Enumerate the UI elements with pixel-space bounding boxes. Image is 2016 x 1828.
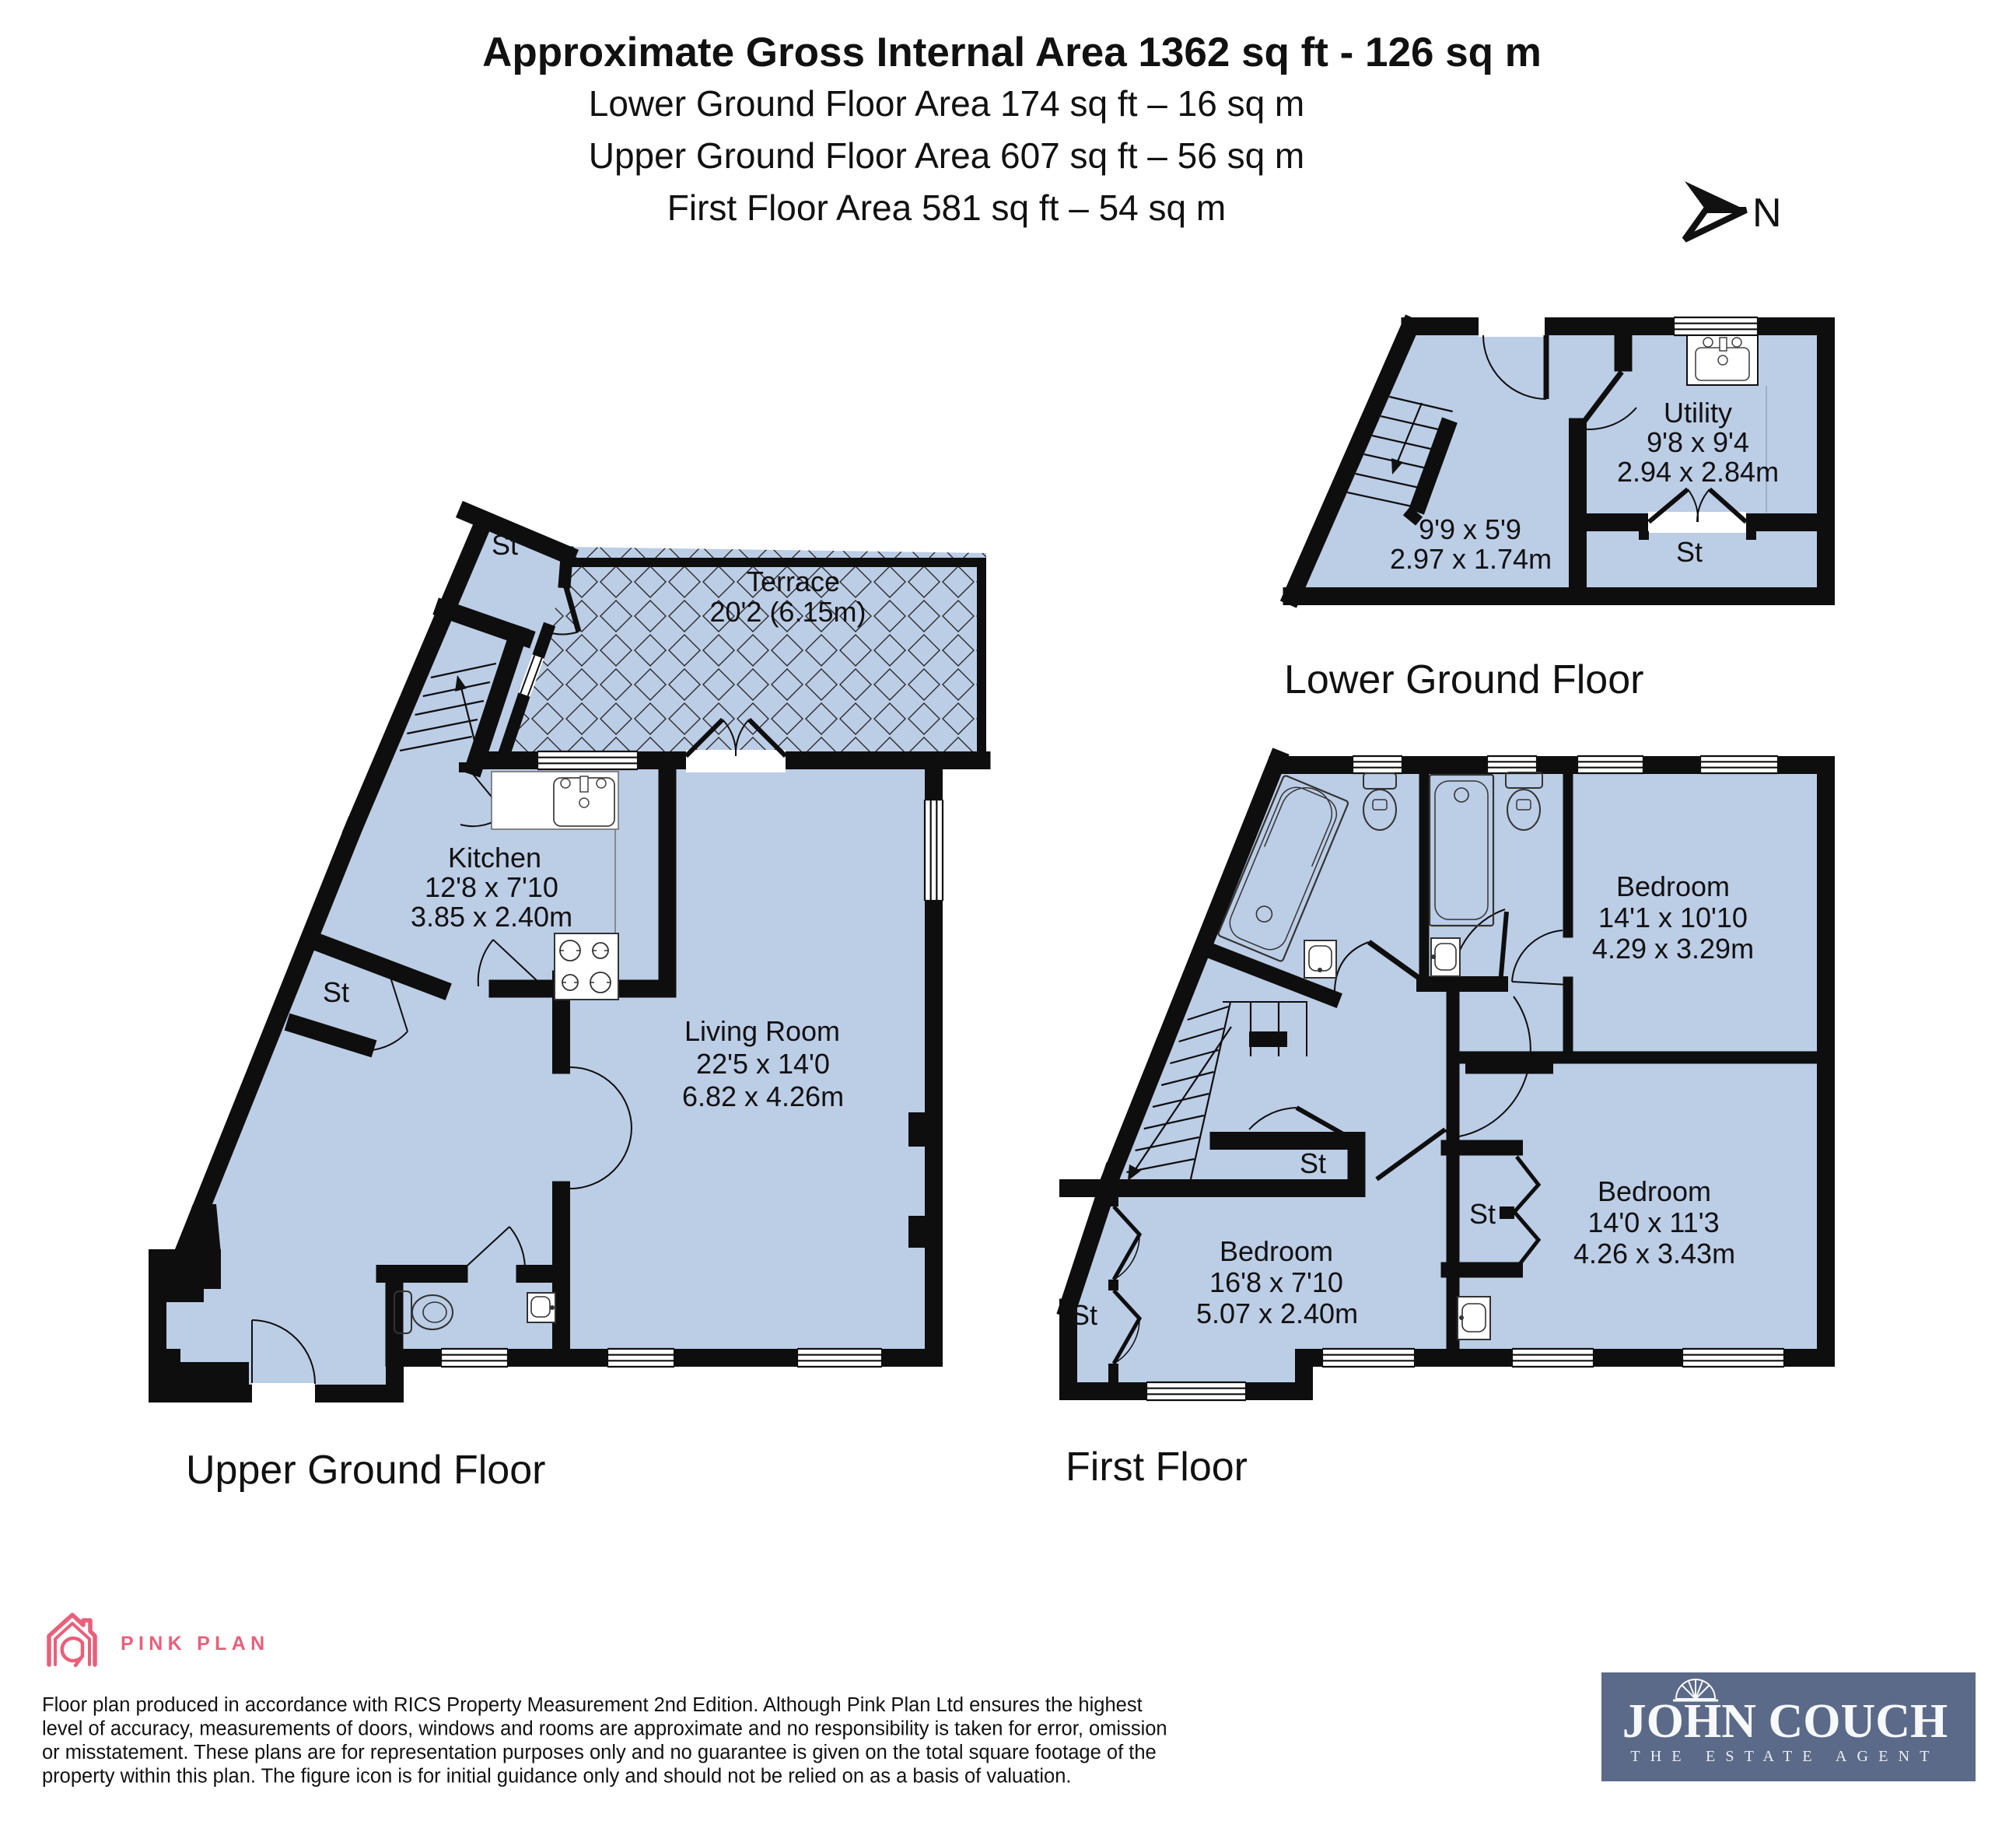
- svg-text:St: St: [1300, 1147, 1326, 1179]
- svg-text:Utility: Utility: [1664, 397, 1732, 429]
- svg-text:4.29 x 3.29m: 4.29 x 3.29m: [1592, 933, 1754, 965]
- svg-text:2.94 x 2.84m: 2.94 x 2.84m: [1617, 456, 1779, 488]
- svg-text:Lower Ground Floor: Lower Ground Floor: [1284, 657, 1643, 702]
- svg-text:Floor plan produced in accorda: Floor plan produced in accordance with R…: [42, 1694, 1143, 1716]
- svg-text:5.07 x 2.40m: 5.07 x 2.40m: [1196, 1297, 1358, 1329]
- svg-text:THE ESTATE AGENT: THE ESTATE AGENT: [1630, 1748, 1939, 1765]
- svg-text:Upper Ground Floor Area 607 sq: Upper Ground Floor Area 607 sq ft – 56 s…: [589, 135, 1305, 176]
- svg-text:12'8 x 7'10: 12'8 x 7'10: [425, 871, 558, 903]
- svg-text:or misstatement. These plans a: or misstatement. These plans are for rep…: [42, 1742, 1157, 1763]
- svg-text:St: St: [1469, 1198, 1496, 1230]
- svg-text:Bedroom: Bedroom: [1220, 1235, 1333, 1267]
- svg-text:3.85 x 2.40m: 3.85 x 2.40m: [411, 901, 572, 933]
- svg-text:level of accuracy, measurement: level of accuracy, measurements of doors…: [42, 1718, 1167, 1740]
- svg-text:2.97 x 1.74m: 2.97 x 1.74m: [1390, 543, 1552, 575]
- svg-text:PINK PLAN: PINK PLAN: [121, 1633, 269, 1655]
- svg-text:Living Room: Living Room: [684, 1015, 840, 1047]
- svg-text:Bedroom: Bedroom: [1616, 870, 1730, 902]
- svg-text:4.26 x 3.43m: 4.26 x 3.43m: [1573, 1238, 1735, 1269]
- svg-text:N: N: [1752, 191, 1782, 236]
- svg-text:Approximate Gross Internal Are: Approximate Gross Internal Area 1362 sq …: [482, 30, 1542, 75]
- svg-text:14'0 x 11'3: 14'0 x 11'3: [1587, 1206, 1719, 1238]
- svg-text:16'8 x 7'10: 16'8 x 7'10: [1209, 1266, 1343, 1298]
- svg-text:6.82 x 4.26m: 6.82 x 4.26m: [682, 1080, 844, 1112]
- svg-text:First Floor: First Floor: [1066, 1445, 1248, 1490]
- svg-text:Terrace: Terrace: [747, 566, 840, 597]
- svg-text:Kitchen: Kitchen: [448, 842, 541, 874]
- svg-text:Upper Ground Floor: Upper Ground Floor: [186, 1448, 545, 1493]
- svg-text:20'2 (6.15m): 20'2 (6.15m): [710, 596, 866, 628]
- svg-text:JOHN COUCH: JOHN COUCH: [1622, 1695, 1948, 1748]
- svg-text:14'1 x 10'10: 14'1 x 10'10: [1598, 902, 1748, 933]
- svg-text:Bedroom: Bedroom: [1598, 1175, 1711, 1207]
- svg-text:9'8 x 9'4: 9'8 x 9'4: [1647, 426, 1749, 458]
- svg-text:St: St: [1676, 536, 1703, 568]
- svg-text:Lower Ground Floor Area 174 sq: Lower Ground Floor Area 174 sq ft – 16 s…: [589, 83, 1305, 124]
- svg-text:First Floor Area 581 sq ft – 5: First Floor Area 581 sq ft – 54 sq m: [667, 187, 1226, 228]
- svg-text:St: St: [492, 529, 518, 561]
- svg-text:St: St: [323, 976, 349, 1008]
- svg-text:St: St: [1071, 1299, 1097, 1331]
- svg-text:9'9 x 5'9: 9'9 x 5'9: [1419, 513, 1521, 545]
- svg-text:22'5 x 14'0: 22'5 x 14'0: [696, 1048, 830, 1080]
- svg-text:property within this plan. The: property within this plan. The figure ic…: [42, 1766, 1072, 1788]
